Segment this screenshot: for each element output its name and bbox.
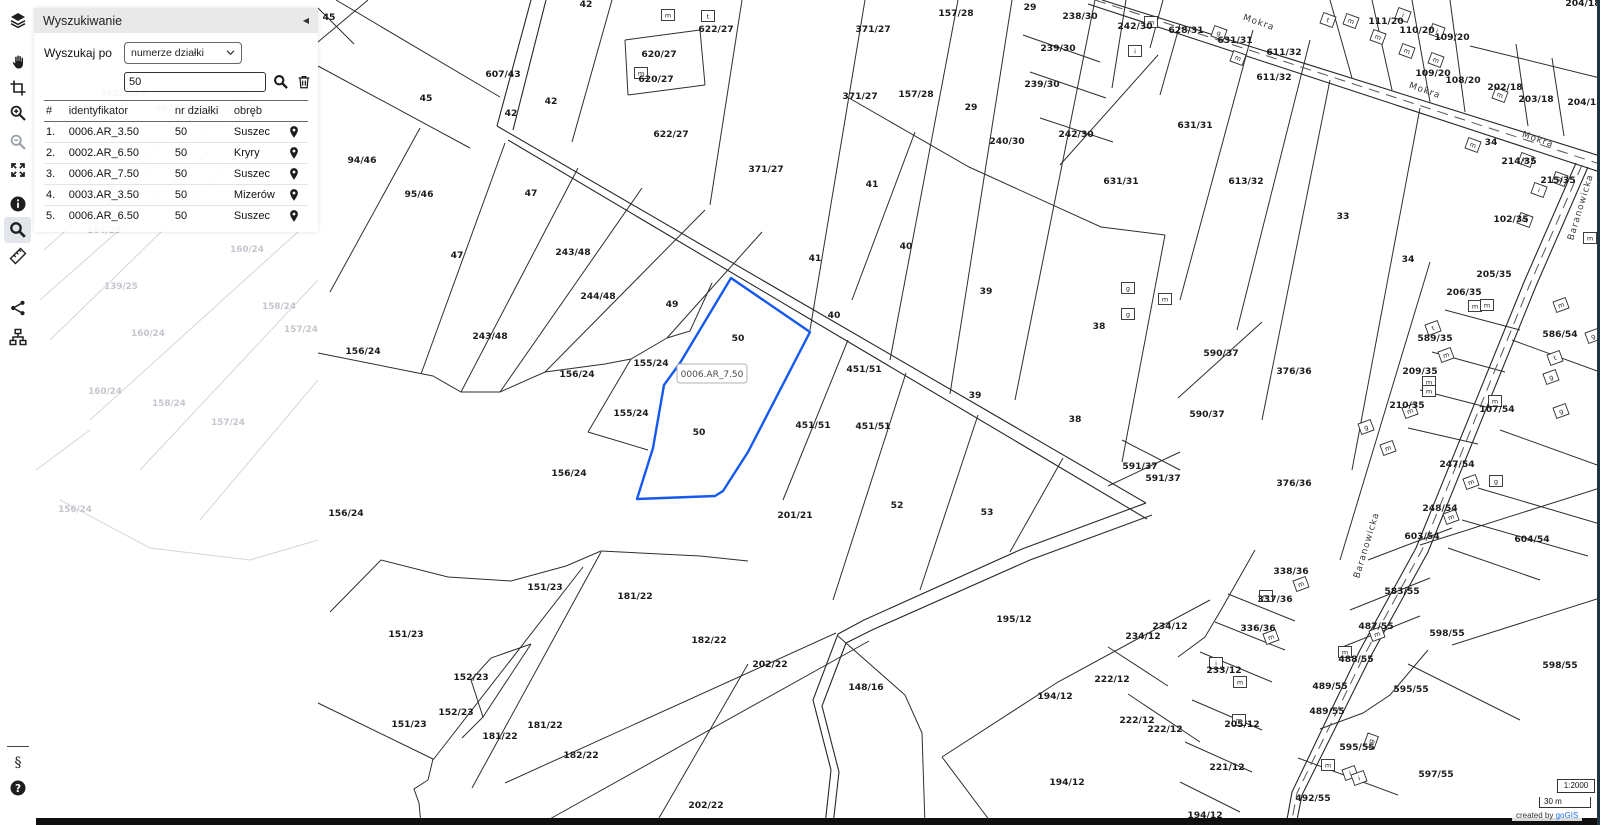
svg-text:620/27: 620/27 [641,49,676,60]
search-by-selected-value: numerze działki [131,47,204,59]
svg-text:156/24: 156/24 [58,505,92,515]
col-district: obręb [232,101,285,122]
zoom-in-button[interactable] [9,104,27,122]
svg-text:194/12: 194/12 [1037,691,1072,702]
svg-text:m: m [665,11,671,19]
svg-text:38: 38 [1093,321,1106,332]
svg-text:107/54: 107/54 [1479,404,1514,415]
chevron-down-icon [226,50,235,56]
show-on-map-icon[interactable] [287,209,308,223]
svg-text:244/48: 244/48 [580,291,615,302]
show-on-map-icon[interactable] [287,146,308,160]
show-on-map-icon[interactable] [287,125,308,139]
svg-text:94/46: 94/46 [348,155,377,166]
svg-text:376/36: 376/36 [1276,478,1311,489]
svg-text:337/36: 337/36 [1257,594,1292,605]
svg-text:47: 47 [451,250,464,261]
svg-text:451/51: 451/51 [855,421,890,432]
result-row[interactable]: 4.0003.AR_3.5050Mizerów [44,185,308,206]
svg-text:202/22: 202/22 [688,800,723,811]
svg-text:156/24: 156/24 [551,468,586,479]
col-id: identyfikator [67,101,173,122]
svg-text:156/24: 156/24 [345,346,380,357]
svg-text:338/36: 338/36 [1273,566,1308,577]
svg-text:371/27: 371/27 [842,91,877,102]
svg-text:451/51: 451/51 [846,364,881,375]
row-identifier: 0006.AR_6.50 [67,206,173,227]
svg-text:109/20: 109/20 [1434,32,1469,43]
search-panel: Wyszukiwanie ◀ Wyszukaj po numerze dział… [34,8,318,232]
svg-text:39: 39 [969,390,982,401]
svg-text:102/35: 102/35 [1493,214,1528,225]
svg-text:156/24: 156/24 [559,369,594,380]
svg-text:489/55: 489/55 [1309,706,1344,717]
svg-text:243/48: 243/48 [472,331,507,342]
svg-text:597/55: 597/55 [1418,769,1453,780]
svg-text:628/31: 628/31 [1168,25,1203,36]
col-index: # [44,101,67,122]
result-row[interactable]: 2.0002.AR_6.5050Kryry [44,143,308,164]
svg-text:591/37: 591/37 [1145,473,1180,484]
result-row[interactable]: 5.0006.AR_6.5050Suszec [44,206,308,227]
svg-text:160/24: 160/24 [131,329,165,339]
svg-text:g: g [1126,310,1130,318]
row-plot-number: 50 [173,185,232,206]
svg-text:151/23: 151/23 [391,719,426,730]
svg-text:234/12: 234/12 [1125,631,1160,642]
row-district: Suszec [232,206,285,227]
svg-text:40: 40 [828,310,841,321]
svg-text:620/27: 620/27 [638,74,673,85]
svg-text:42: 42 [505,108,518,119]
svg-text:210/35: 210/35 [1389,400,1424,411]
row-district: Suszec [232,164,285,185]
svg-text:39: 39 [980,286,993,297]
svg-text:195/12: 195/12 [996,614,1031,625]
search-icon[interactable] [273,74,289,90]
svg-text:g: g [1126,284,1130,292]
collapse-panel-icon[interactable]: ◀ [303,8,309,33]
svg-text:194/12: 194/12 [1049,777,1084,788]
result-row[interactable]: 3.0006.AR_7.5050Suszec [44,164,308,185]
attribution: created by goGIS [1512,810,1582,821]
svg-text:215/35: 215/35 [1540,175,1575,186]
svg-text:155/24: 155/24 [613,408,648,419]
svg-text:Mokra: Mokra [1242,13,1276,33]
svg-text:47: 47 [525,188,538,199]
svg-text:52: 52 [891,500,904,511]
share-button[interactable] [9,299,27,317]
svg-text:148/16: 148/16 [848,682,883,693]
svg-text:206/35: 206/35 [1446,287,1481,298]
svg-text:t: t [707,12,710,20]
pan-button[interactable] [9,53,27,71]
full-extent-button[interactable] [9,161,27,179]
search-panel-header: Wyszukiwanie ◀ [34,8,318,33]
svg-text:240/30: 240/30 [989,136,1024,147]
svg-text:33: 33 [1337,211,1350,222]
svg-text:204/18: 204/18 [1567,97,1600,108]
svg-text:?: ? [15,783,21,795]
svg-text:239/30: 239/30 [1040,43,1075,54]
svg-text:50: 50 [693,427,706,438]
col-plot: nr działki [173,101,232,122]
svg-text:248/54: 248/54 [1422,503,1457,514]
svg-text:613/32: 613/32 [1228,176,1263,187]
svg-text:m: m [1472,302,1478,310]
svg-text:158/24: 158/24 [262,302,296,312]
svg-text:157/28: 157/28 [938,8,973,19]
svg-text:371/27: 371/27 [748,164,783,175]
svg-text:371/27: 371/27 [855,24,890,35]
row-index: 4. [44,185,67,206]
svg-text:139/25: 139/25 [104,282,138,292]
svg-text:376/36: 376/36 [1276,366,1311,377]
row-district: Mizerów [232,185,285,206]
svg-text:239/30: 239/30 [1024,79,1059,90]
svg-text:202/18: 202/18 [1487,82,1522,93]
row-identifier: 0003.AR_3.50 [67,185,173,206]
row-plot-number: 50 [173,122,232,143]
svg-text:181/22: 181/22 [527,720,562,731]
svg-text:m: m [1325,761,1331,769]
row-index: 5. [44,206,67,227]
svg-text:158/24: 158/24 [152,399,186,409]
row-district: Suszec [232,122,285,143]
svg-text:41: 41 [809,253,822,264]
svg-text:222/12: 222/12 [1147,724,1182,735]
attribution-link[interactable]: goGIS [1556,811,1579,820]
select-area-button[interactable] [9,79,27,97]
svg-text:181/22: 181/22 [617,591,652,602]
svg-text:243/48: 243/48 [555,247,590,258]
svg-text:242/30: 242/30 [1117,21,1152,32]
svg-text:41: 41 [866,179,879,190]
svg-text:603/54: 603/54 [1404,531,1439,542]
search-panel-title: Wyszukiwanie [43,14,303,28]
toolbar-divider [7,746,29,747]
result-row[interactable]: 1.0006.AR_3.5050Suszec [44,122,308,143]
svg-text:233/12: 233/12 [1206,665,1241,676]
search-input[interactable] [124,72,266,92]
svg-text:451/51: 451/51 [795,420,830,431]
svg-text:611/32: 611/32 [1266,47,1301,58]
svg-text:Baranowicka: Baranowicka [1352,511,1382,579]
svg-text:157/24: 157/24 [211,418,245,428]
search-panel-body: Wyszukaj po numerze działki # identyfika… [34,33,318,232]
svg-text:234/12: 234/12 [1152,621,1187,632]
svg-text:607/43: 607/43 [485,69,520,80]
svg-text:151/23: 151/23 [527,582,562,593]
help-button[interactable]: ? [9,779,27,797]
row-identifier: 0002.AR_6.50 [67,143,173,164]
row-index: 2. [44,143,67,164]
svg-text:29: 29 [965,102,978,113]
svg-text:34: 34 [1402,254,1415,265]
svg-text:201/21: 201/21 [777,510,812,521]
svg-text:238/30: 238/30 [1062,11,1097,22]
svg-text:95/46: 95/46 [405,189,434,200]
svg-text:160/24: 160/24 [230,245,264,255]
svg-text:247/54: 247/54 [1439,459,1474,470]
svg-text:34: 34 [1485,137,1498,148]
svg-text:29: 29 [1024,2,1037,13]
svg-text:156/24: 156/24 [328,508,363,519]
svg-text:157/28: 157/28 [898,89,933,100]
svg-text:50: 50 [732,333,745,344]
svg-text:221/12: 221/12 [1209,762,1244,773]
svg-text:181/22: 181/22 [482,731,517,742]
svg-text:590/37: 590/37 [1203,348,1238,359]
legal-button[interactable]: § [9,753,27,771]
svg-text:209/35: 209/35 [1402,366,1437,377]
map-scale-bar: 30 m [1539,797,1591,808]
svg-text:49: 49 [666,299,679,310]
svg-text:0006.AR_7.50: 0006.AR_7.50 [681,370,744,380]
zoom-out-button[interactable] [9,133,27,151]
svg-text:492/55: 492/55 [1295,793,1330,804]
svg-text:589/35: 589/35 [1417,333,1452,344]
svg-text:205/12: 205/12 [1224,719,1259,730]
svg-text:42: 42 [580,0,593,10]
svg-text:214/35: 214/35 [1501,156,1536,167]
search-by-label: Wyszukaj po [44,46,124,60]
search-button[interactable] [9,221,27,239]
svg-text:53: 53 [981,507,994,518]
svg-text:152/23: 152/23 [453,672,488,683]
svg-text:160/24: 160/24 [88,387,122,397]
layer-tree-button[interactable] [9,328,27,346]
show-on-map-icon[interactable] [287,167,308,181]
svg-text:590/37: 590/37 [1189,409,1224,420]
svg-text:611/32: 611/32 [1256,72,1291,83]
svg-text:42: 42 [545,96,558,107]
svg-text:622/27: 622/27 [698,24,733,35]
svg-text:m: m [1587,234,1593,242]
results-table: # identyfikator nr działki obręb 1.0006.… [44,100,308,226]
map-scale-ratio: 1:2000 [1557,779,1595,793]
svg-text:45: 45 [323,12,336,23]
row-index: 3. [44,164,67,185]
row-plot-number: 50 [173,164,232,185]
svg-text:38: 38 [1069,414,1082,425]
svg-text:203/18: 203/18 [1518,94,1553,105]
row-index: 1. [44,122,67,143]
svg-text:488/55: 488/55 [1338,654,1373,665]
layers-button[interactable] [9,11,27,29]
svg-text:631/31: 631/31 [1217,35,1252,46]
svg-text:155/24: 155/24 [633,358,668,369]
row-plot-number: 50 [173,143,232,164]
svg-text:205/35: 205/35 [1476,269,1511,280]
svg-text:m: m [1484,301,1490,309]
svg-text:242/30: 242/30 [1058,129,1093,140]
svg-text:631/31: 631/31 [1103,176,1138,187]
svg-text:222/12: 222/12 [1094,674,1129,685]
svg-text:108/20: 108/20 [1445,75,1480,86]
highlighted-parcel[interactable] [637,278,810,499]
info-button[interactable] [9,195,27,213]
svg-text:622/27: 622/27 [653,129,688,140]
svg-text:604/54: 604/54 [1514,534,1549,545]
svg-text:631/31: 631/31 [1177,120,1212,131]
col-actions [285,101,308,122]
svg-text:202/22: 202/22 [752,659,787,670]
svg-text:598/55: 598/55 [1542,660,1577,671]
gis-app: mtmmigmtmmiimmmmmmimmgmgmmtmmmmgmmgtggmm… [0,0,1600,825]
svg-text:Mokra: Mokra [1408,81,1442,101]
svg-text:152/23: 152/23 [438,707,473,718]
row-plot-number: 50 [173,206,232,227]
results-header-row: # identyfikator nr działki obręb [44,101,308,122]
svg-text:m: m [1162,295,1168,303]
svg-text:583/55: 583/55 [1384,586,1419,597]
svg-text:182/22: 182/22 [691,635,726,646]
attribution-text: created by [1516,811,1553,820]
svg-text:m: m [1237,678,1243,686]
svg-text:110/20: 110/20 [1399,25,1434,36]
trash-icon[interactable] [296,74,312,90]
row-identifier: 0006.AR_7.50 [67,164,173,185]
svg-text:151/23: 151/23 [388,629,423,640]
search-by-select[interactable]: numerze działki [124,42,242,64]
svg-text:m: m [1426,387,1432,395]
svg-text:487/55: 487/55 [1358,621,1393,632]
left-toolbar: §? [0,0,36,825]
svg-text:595/55: 595/55 [1393,684,1428,695]
svg-text:i: i [1134,47,1136,55]
svg-text:g: g [1494,477,1498,485]
svg-text:586/54: 586/54 [1542,329,1577,340]
svg-text:45: 45 [420,93,433,104]
svg-text:489/55: 489/55 [1312,681,1347,692]
svg-text:598/55: 598/55 [1429,628,1464,639]
svg-text:204/18: 204/18 [1565,0,1600,9]
svg-text:157/24: 157/24 [284,325,318,335]
svg-text:595/55: 595/55 [1339,742,1374,753]
measure-button[interactable] [9,247,27,265]
svg-text:336/36: 336/36 [1240,623,1275,634]
row-district: Kryry [232,143,285,164]
show-on-map-icon[interactable] [287,188,308,202]
map-bottom-edge [36,818,1600,825]
row-identifier: 0006.AR_3.50 [67,122,173,143]
svg-text:182/22: 182/22 [563,750,598,761]
svg-text:591/37: 591/37 [1122,461,1157,472]
svg-text:§: § [15,755,22,771]
parcel-tooltip: 0006.AR_7.50 [677,364,747,383]
svg-text:40: 40 [900,241,913,252]
